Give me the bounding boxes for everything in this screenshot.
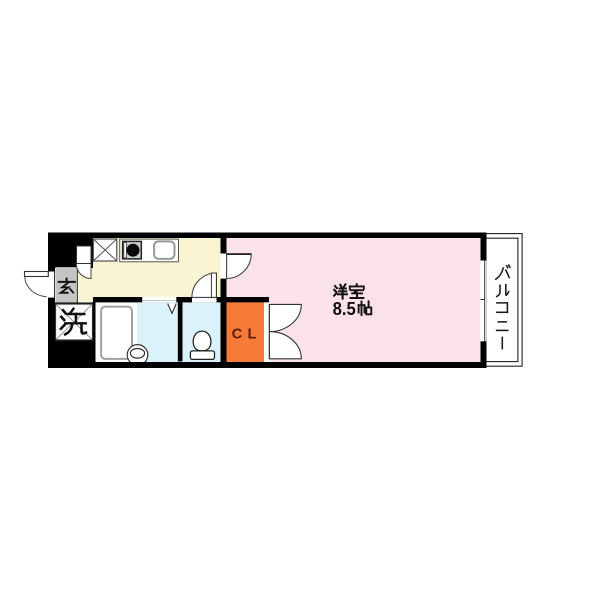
svg-text:C: C (232, 326, 243, 342)
svg-text:L: L (248, 326, 257, 342)
svg-text:8.5: 8.5 (333, 298, 356, 319)
